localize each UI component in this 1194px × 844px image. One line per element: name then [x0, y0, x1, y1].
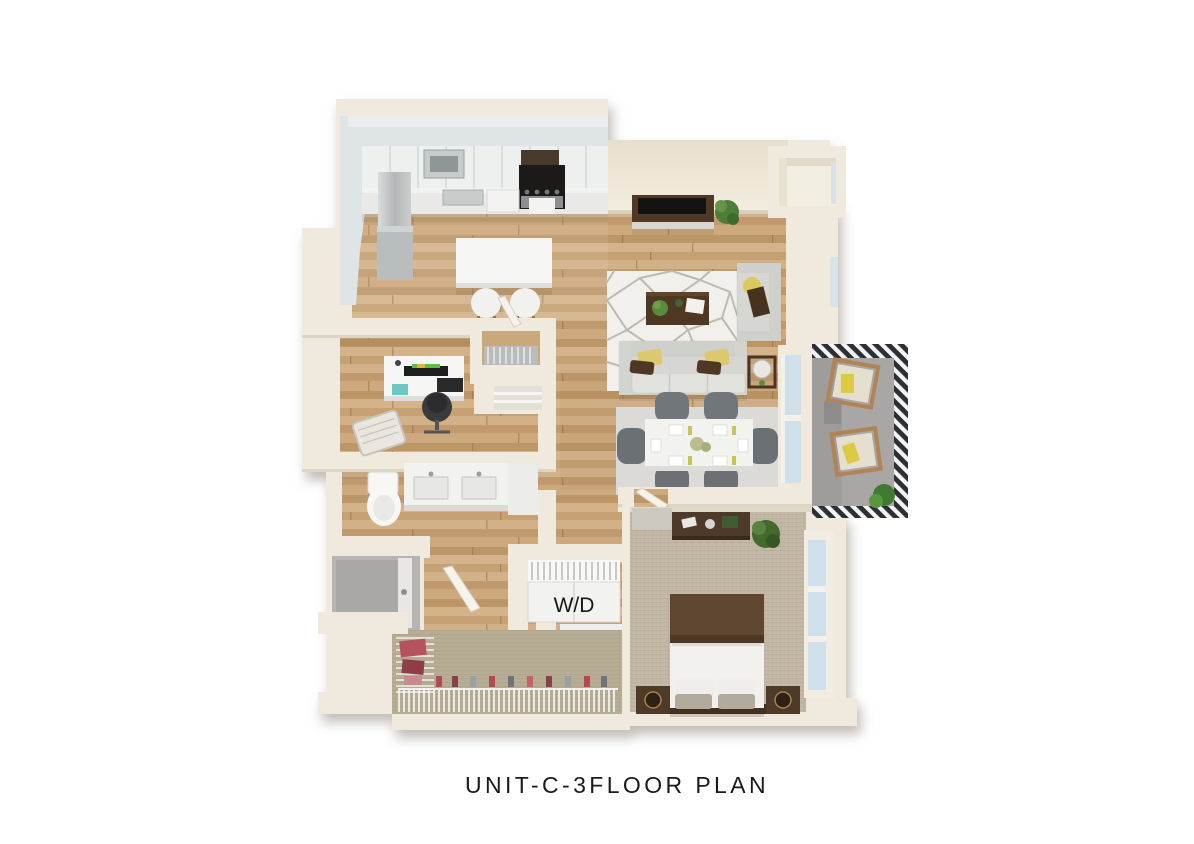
svg-text:W/D: W/D	[554, 594, 595, 617]
svg-text:UNIT-C-3FLOOR PLAN: UNIT-C-3FLOOR PLAN	[465, 772, 769, 798]
